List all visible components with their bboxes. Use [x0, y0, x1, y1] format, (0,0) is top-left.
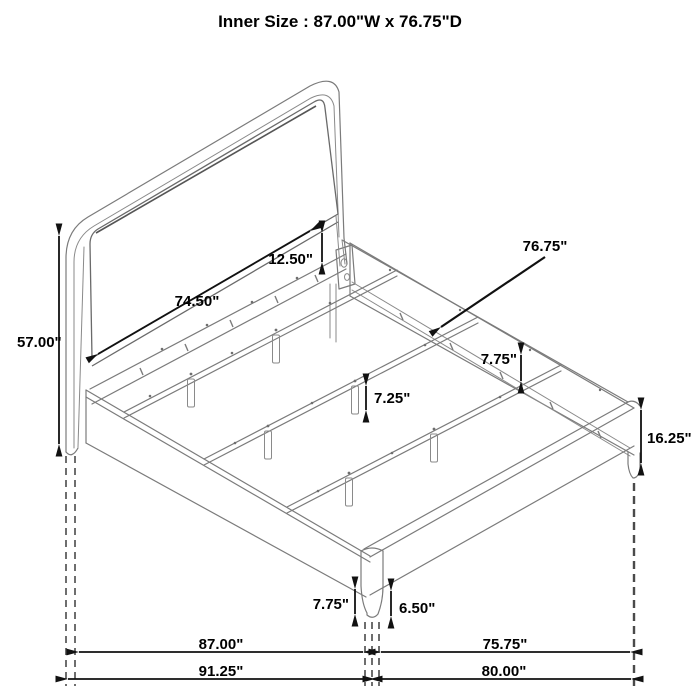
- dim-inner-width: 87.00": [79, 636, 363, 653]
- bed-dimension-diagram: 57.00" 74.50" 12.50" 76.75" 7.75" 7.25": [0, 0, 700, 700]
- dim-label-headboard-inner-width: 74.50": [175, 293, 220, 310]
- dim-label-slat-leg-height: 7.25": [374, 390, 410, 407]
- headboard-panel: [90, 100, 338, 358]
- dim-label-inner-depth: 76.75": [523, 238, 568, 255]
- dim-inner-depth: 76.75": [441, 238, 567, 327]
- dim-label-foot-inner-depth: 75.75": [483, 636, 528, 653]
- slat-3: [287, 365, 561, 513]
- dim-label-overall-depth: 80.00": [482, 663, 527, 680]
- right-corner-foot: [626, 401, 640, 478]
- dim-front-leg-height: 7.75": [313, 589, 355, 614]
- dim-label-inner-width: 87.00": [199, 636, 244, 653]
- dim-label-overall-width: 91.25": [199, 663, 244, 680]
- dim-label-frame-side-height: 16.25": [647, 430, 692, 447]
- dim-label-headboard-height: 57.00": [17, 334, 62, 351]
- left-side-rail: [86, 390, 370, 597]
- dim-label-front-leg-taper: 6.50": [399, 600, 435, 617]
- bed-frame-drawing: [66, 81, 640, 686]
- dim-foot-inner-depth: 75.75": [381, 636, 630, 653]
- head-rail: [90, 254, 346, 404]
- dim-overall-width: 91.25": [68, 663, 370, 680]
- dim-overall-depth: 80.00": [375, 663, 631, 680]
- dim-headboard-inner-width: 74.50": [98, 231, 310, 354]
- dim-headboard-height: 57.00": [17, 236, 62, 444]
- foot-rail: [364, 402, 634, 595]
- dim-rail-to-slat: 7.75": [481, 351, 521, 381]
- dim-slat-leg-height: 7.25": [366, 386, 410, 410]
- dim-label-panel-to-rail-gap: 12.50": [268, 251, 313, 268]
- diagram-title: Inner Size : 87.00"W x 76.75"D: [218, 12, 462, 31]
- right-post-lower-leg: [330, 284, 336, 342]
- dim-panel-to-rail-gap: 12.50": [268, 233, 322, 268]
- dim-label-rail-to-slat: 7.75": [481, 351, 517, 368]
- dim-frame-side-height: 16.25": [641, 410, 692, 463]
- slat-2: [204, 317, 478, 465]
- diagram-canvas: 57.00" 74.50" 12.50" 76.75" 7.75" 7.25": [0, 0, 700, 700]
- dim-label-front-leg-height: 7.75": [313, 596, 349, 613]
- dim-front-leg-taper: 6.50": [391, 591, 435, 617]
